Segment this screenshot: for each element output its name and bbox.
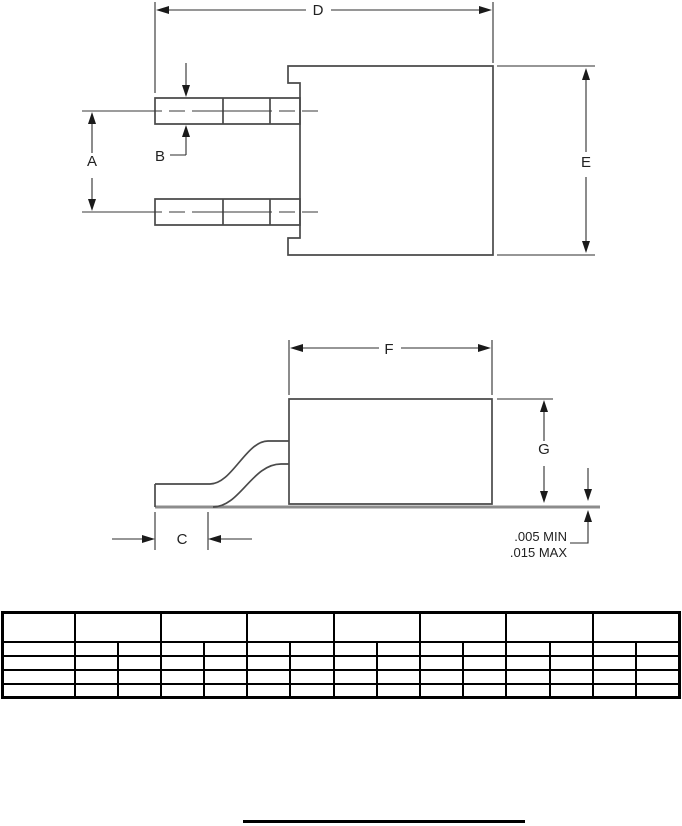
table-header-row: [3, 613, 680, 642]
table-cell: [550, 642, 593, 656]
table-cell: [593, 684, 636, 698]
table-cell: [75, 656, 118, 670]
table-cell: [75, 613, 161, 642]
table-cell: [506, 670, 549, 684]
table-cell: [550, 684, 593, 698]
table-cell: [420, 670, 463, 684]
table-cell: [463, 656, 506, 670]
dim-f-arrow-right: [478, 344, 491, 352]
table-cell: [593, 670, 636, 684]
table-cell: [463, 642, 506, 656]
dim-f-label: F: [384, 341, 393, 358]
table-cell: [334, 656, 377, 670]
dim-c-arrow-left: [142, 535, 155, 543]
table-cell: [377, 642, 420, 656]
dimension-c: C: [112, 512, 252, 550]
table-cell: [420, 656, 463, 670]
table-cell: [75, 670, 118, 684]
drawing-page: D E A B: [0, 0, 682, 826]
table-cell: [161, 656, 204, 670]
table-cell: [75, 684, 118, 698]
table-cell: [506, 613, 592, 642]
table-cell: [118, 656, 161, 670]
table-row: [3, 642, 680, 656]
dimension-e: E: [497, 66, 595, 255]
table-cell: [420, 684, 463, 698]
side-view-lead: [155, 441, 289, 507]
table-cell: [204, 642, 247, 656]
standoff-min-label: .005 MIN: [514, 529, 567, 544]
table-cell: [334, 613, 420, 642]
table-cell: [506, 656, 549, 670]
table-cell: [377, 670, 420, 684]
dim-e-arrow-bottom: [582, 241, 590, 253]
table-cell: [75, 642, 118, 656]
table-cell: [290, 656, 333, 670]
table-cell: [3, 684, 75, 698]
side-view-body-outline: [289, 399, 492, 504]
table-row: [3, 684, 680, 698]
table-cell: [334, 684, 377, 698]
table-cell: [334, 642, 377, 656]
table-cell: [118, 642, 161, 656]
standoff-arrow-up: [584, 510, 592, 522]
bottom-rule-line: [243, 820, 525, 823]
dim-d-arrow-right: [479, 6, 492, 14]
dim-a-arrow-bottom: [88, 199, 96, 211]
table-cell: [550, 670, 593, 684]
table-cell: [593, 642, 636, 656]
table-cell: [247, 670, 290, 684]
table-cell: [118, 684, 161, 698]
top-view: D E A B: [82, 2, 595, 255]
dim-d-arrow-left: [156, 6, 169, 14]
dimension-b: B: [155, 63, 190, 165]
table-cell: [506, 684, 549, 698]
table-cell: [118, 670, 161, 684]
dim-b-arrow-down: [182, 85, 190, 97]
table-cell: [204, 684, 247, 698]
standoff-arrow-down: [584, 489, 592, 501]
table-cell: [377, 656, 420, 670]
dim-d-label: D: [313, 2, 324, 19]
dim-g-label: G: [538, 441, 550, 458]
package-outline-drawing: D E A B: [0, 0, 682, 600]
table-cell: [593, 656, 636, 670]
dim-g-arrow-bottom: [540, 491, 548, 503]
table-cell: [506, 642, 549, 656]
table-cell: [420, 613, 506, 642]
table-cell: [550, 656, 593, 670]
table-cell: [161, 642, 204, 656]
table-cell: [161, 670, 204, 684]
table-cell: [636, 670, 679, 684]
table-cell: [161, 613, 247, 642]
table-cell: [247, 613, 333, 642]
table-cell: [290, 642, 333, 656]
table-cell: [636, 656, 679, 670]
side-view: F G C .005 MIN .015 M: [112, 340, 600, 560]
dimension-g: G: [497, 399, 553, 503]
standoff-max-label: .015 MAX: [510, 545, 567, 560]
table-cell: [3, 613, 75, 642]
table-cell: [3, 670, 75, 684]
table-cell: [161, 684, 204, 698]
table-cell: [334, 670, 377, 684]
dim-c-label: C: [177, 531, 188, 548]
table-cell: [204, 670, 247, 684]
table-cell: [3, 642, 75, 656]
dim-a-label: A: [87, 153, 97, 170]
table-row: [3, 656, 680, 670]
dimension-a: A: [87, 112, 97, 211]
table-row: [3, 670, 680, 684]
dim-e-label: E: [581, 154, 591, 171]
dimension-table: [1, 611, 681, 699]
dim-g-arrow-top: [540, 400, 548, 412]
table-cell: [377, 684, 420, 698]
table-cell: [290, 684, 333, 698]
top-view-body-outline: [288, 66, 493, 255]
table-cell: [290, 670, 333, 684]
dimension-f: F: [289, 340, 492, 395]
dim-b-label: B: [155, 148, 165, 165]
table-cell: [636, 642, 679, 656]
table-cell: [204, 656, 247, 670]
dimension-standoff: .005 MIN .015 MAX: [510, 468, 592, 560]
dimension-d: D: [155, 2, 493, 93]
table-cell: [3, 656, 75, 670]
table-cell: [463, 684, 506, 698]
dim-a-arrow-top: [88, 112, 96, 124]
table-cell: [247, 642, 290, 656]
table-cell: [247, 656, 290, 670]
table-cell: [593, 613, 679, 642]
table-cell: [463, 670, 506, 684]
table-cell: [247, 684, 290, 698]
dim-b-arrow-up: [182, 125, 190, 137]
dim-f-arrow-left: [290, 344, 303, 352]
table-cell: [636, 684, 679, 698]
dim-c-arrow-right: [208, 535, 221, 543]
table-cell: [420, 642, 463, 656]
dim-e-arrow-top: [582, 68, 590, 80]
